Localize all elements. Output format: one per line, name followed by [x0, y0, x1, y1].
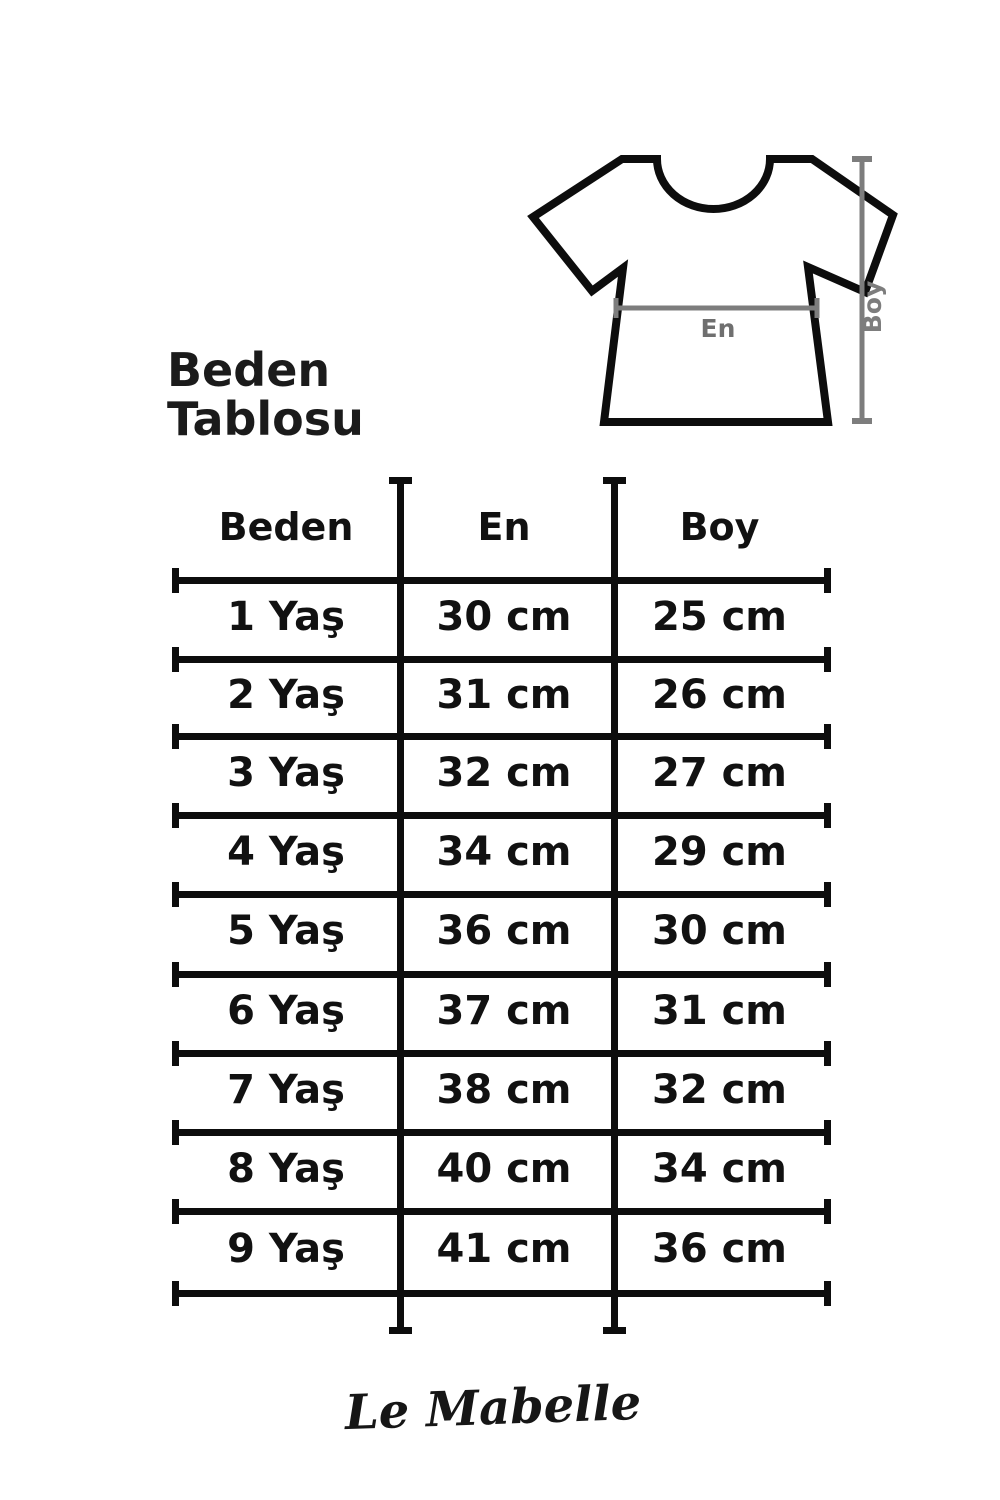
size-cell: 6 Yaş [175, 971, 397, 1050]
table-header-row: Beden En Boy [175, 477, 828, 577]
header-size: Beden [175, 477, 397, 577]
size-cell: 8 Yaş [175, 1129, 397, 1208]
width-measure-label: En [701, 314, 736, 343]
table-row: 1 Yaş 30 cm 25 cm [175, 577, 828, 656]
table-row: 7 Yaş 38 cm 32 cm [175, 1050, 828, 1129]
table-row: 5 Yaş 36 cm 30 cm [175, 891, 828, 971]
boy-cell: 34 cm [611, 1129, 828, 1208]
size-cell: 2 Yaş [175, 656, 397, 733]
table-row: 8 Yaş 40 cm 34 cm [175, 1129, 828, 1208]
en-cell: 30 cm [397, 577, 611, 656]
en-cell: 36 cm [397, 891, 611, 971]
table-row: 4 Yaş 34 cm 29 cm [175, 812, 828, 891]
boy-cell: 29 cm [611, 812, 828, 891]
table-row-line [172, 1290, 831, 1297]
table-line-cap [389, 1327, 412, 1334]
boy-cell: 36 cm [611, 1208, 828, 1290]
boy-cell: 31 cm [611, 971, 828, 1050]
table-row: 9 Yaş 41 cm 36 cm [175, 1208, 828, 1290]
header-height: Boy [611, 477, 828, 577]
boy-cell: 26 cm [611, 656, 828, 733]
size-cell: 1 Yaş [175, 577, 397, 656]
length-measure-label: Boy [858, 281, 887, 334]
size-cell: 9 Yaş [175, 1208, 397, 1290]
table-row: 2 Yaş 31 cm 26 cm [175, 656, 828, 733]
size-cell: 4 Yaş [175, 812, 397, 891]
en-cell: 41 cm [397, 1208, 611, 1290]
tshirt-outline-icon [533, 159, 893, 422]
page-title: Beden Tablosu [167, 346, 364, 444]
size-cell: 3 Yaş [175, 733, 397, 812]
header-width: En [397, 477, 611, 577]
en-cell: 34 cm [397, 812, 611, 891]
boy-cell: 27 cm [611, 733, 828, 812]
tshirt-diagram: En Boy [510, 135, 910, 445]
page-title-line2: Tablosu [167, 395, 364, 444]
en-cell: 38 cm [397, 1050, 611, 1129]
boy-cell: 32 cm [611, 1050, 828, 1129]
table-row: 3 Yaş 32 cm 27 cm [175, 733, 828, 812]
table-row: 6 Yaş 37 cm 31 cm [175, 971, 828, 1050]
boy-cell: 25 cm [611, 577, 828, 656]
size-table: Beden En Boy 1 Yaş 30 cm 25 cm 2 Yaş 31 … [175, 477, 828, 1334]
en-cell: 32 cm [397, 733, 611, 812]
boy-cell: 30 cm [611, 891, 828, 971]
size-cell: 5 Yaş [175, 891, 397, 971]
en-cell: 37 cm [397, 971, 611, 1050]
page-title-line1: Beden [167, 346, 364, 395]
size-chart-page: Beden Tablosu En Boy [0, 0, 1000, 1500]
en-cell: 40 cm [397, 1129, 611, 1208]
en-cell: 31 cm [397, 656, 611, 733]
size-cell: 7 Yaş [175, 1050, 397, 1129]
table-line-cap [603, 1327, 626, 1334]
brand-logo: Le Mabelle [0, 1363, 987, 1453]
